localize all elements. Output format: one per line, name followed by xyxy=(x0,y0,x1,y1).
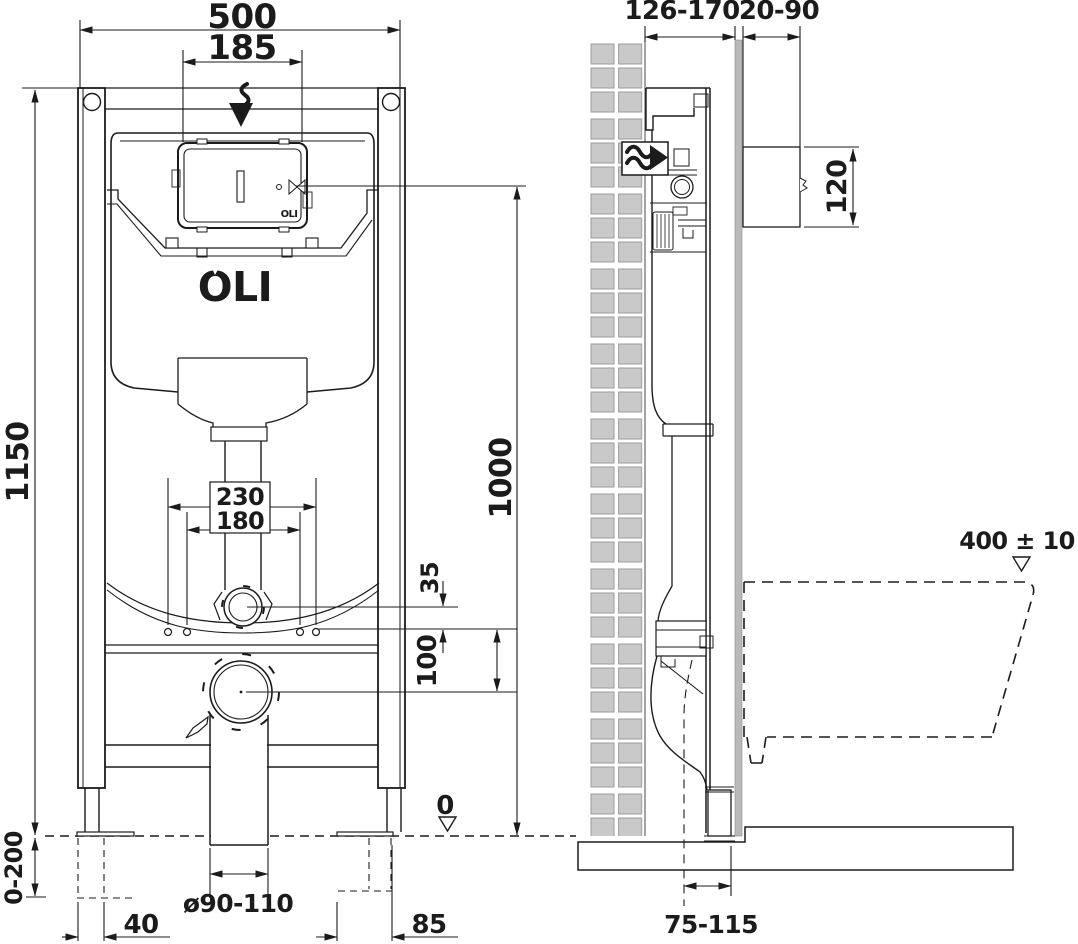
svg-text:20-90: 20-90 xyxy=(739,0,819,26)
wall-board xyxy=(735,40,742,836)
drain-elbow xyxy=(651,656,707,906)
svg-text:126-170: 126-170 xyxy=(624,0,739,26)
plate-latch-notch xyxy=(800,178,807,192)
svg-text:120: 120 xyxy=(822,160,853,215)
flush-pipe-side xyxy=(658,436,672,621)
foot-plate-right xyxy=(337,832,393,836)
lower-crossbar-side xyxy=(656,621,713,667)
svg-text:1150: 1150 xyxy=(1,421,36,502)
insert-arrow-icon xyxy=(229,84,253,127)
svg-text:85: 85 xyxy=(412,910,447,940)
toilet-bowl-outline xyxy=(744,582,1034,763)
dim-plate-height: 120 xyxy=(804,147,859,227)
frame-fixing-hole-left xyxy=(84,94,101,111)
tank-hopper xyxy=(178,358,307,427)
dim-inlet-to-drain: 100 xyxy=(413,630,497,691)
flush-plate-side xyxy=(743,147,807,227)
flush-pipe-collar xyxy=(211,427,267,441)
svg-text:185: 185 xyxy=(207,28,276,68)
dim-foot-right: 85 xyxy=(316,845,458,941)
dim-plate-axis-height: 1000 xyxy=(484,187,519,835)
svg-text:OLI: OLI xyxy=(198,263,272,311)
dim-leg-adjust: 0-200 xyxy=(0,831,46,905)
bowl-bolt-hole xyxy=(184,629,191,636)
side-view: 400 ± 10 126-170 20-90 120 75-115 xyxy=(578,0,1075,939)
dim-drain-pipe-diameter: ø90-110 xyxy=(183,848,294,918)
frame-rail-side xyxy=(646,88,710,833)
frame-fixing-hole-right xyxy=(383,94,400,111)
dim-plate-depth: 20-90 xyxy=(739,0,819,147)
dim-frame-height: 1150 xyxy=(1,88,78,835)
installation-drawing: OLI OLI xyxy=(0,0,1078,944)
logo-plate-text: OLI xyxy=(281,209,298,220)
svg-text:400 ± 10: 400 ± 10 xyxy=(959,527,1075,555)
cistern-profile-side xyxy=(646,88,735,906)
floor-level-marker: 0 xyxy=(436,791,456,831)
foot-plate-left xyxy=(77,832,134,836)
drain-pipe-front xyxy=(210,715,268,845)
plate-fixing-bolt xyxy=(674,149,689,166)
svg-text:40: 40 xyxy=(124,910,159,940)
svg-text:100: 100 xyxy=(413,635,443,687)
svg-text:180: 180 xyxy=(216,507,264,535)
internal-mechanism xyxy=(650,203,707,252)
front-view: OLI OLI xyxy=(0,0,576,941)
bowl-bolt-hole xyxy=(297,629,304,636)
technical-drawing-page: OLI OLI xyxy=(0,0,1078,944)
svg-text:35: 35 xyxy=(416,562,444,594)
dim-foot-left: 40 xyxy=(62,902,170,941)
water-supply-icon xyxy=(622,142,668,175)
svg-text:1000: 1000 xyxy=(484,437,519,518)
bowl-bolt-hole xyxy=(165,629,172,636)
dim-drain-wall-distance: 75-115 xyxy=(664,846,758,939)
flush-plate-opening: OLI xyxy=(172,139,312,232)
bowl-height-marker: 400 ± 10 xyxy=(959,527,1075,571)
svg-text:ø90-110: ø90-110 xyxy=(183,889,294,918)
oli-logo-main: OLI xyxy=(198,263,272,311)
svg-text:75-115: 75-115 xyxy=(664,910,758,939)
dim-install-depth: 126-170 xyxy=(624,0,739,42)
svg-text:0-200: 0-200 xyxy=(0,831,28,905)
drain-outlet-stub xyxy=(704,787,735,841)
clamp-lever xyxy=(186,717,208,738)
